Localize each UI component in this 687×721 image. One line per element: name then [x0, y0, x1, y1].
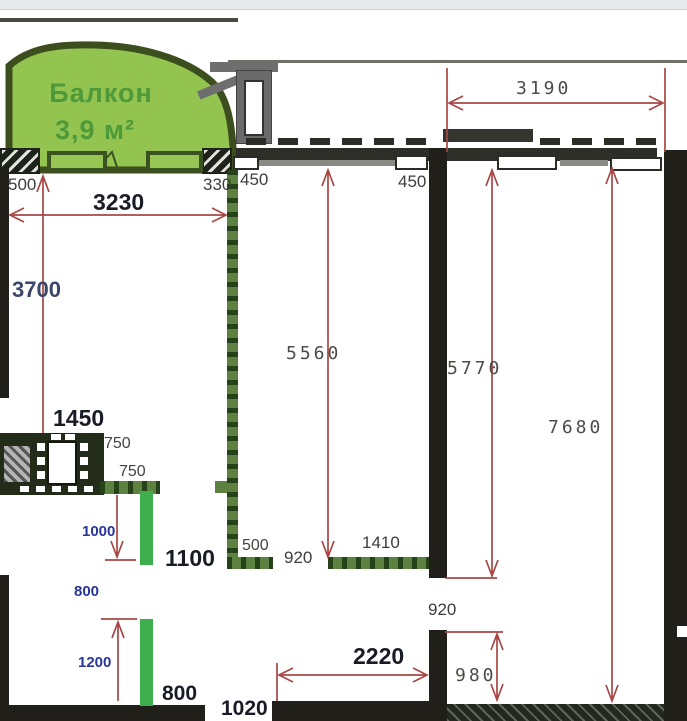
dim-750-lower: 750: [119, 464, 146, 480]
dim-920-mid: 920: [284, 549, 312, 566]
dim-750-upper: 750: [104, 436, 131, 452]
floor-plan: Балкон 3,9 м²: [0, 0, 687, 721]
dim-980: 980: [455, 667, 497, 685]
dim-1020: 1020: [221, 698, 268, 719]
dim-5770: 5770: [447, 360, 502, 378]
dimension-lines: [0, 0, 687, 721]
dim-330: 330: [203, 176, 231, 193]
dim-2220: 2220: [353, 645, 404, 668]
dim-1450: 1450: [53, 407, 104, 430]
dim-450-right: 450: [398, 173, 426, 190]
dim-1000: 1000: [82, 524, 115, 539]
dim-920-right: 920: [428, 601, 456, 618]
dim-1100: 1100: [165, 547, 215, 570]
dim-7680: 7680: [548, 419, 603, 437]
dim-1200: 1200: [78, 655, 111, 670]
dim-5560: 5560: [286, 345, 341, 363]
dim-500-bottom: 500: [242, 538, 269, 554]
dim-1410: 1410: [362, 534, 400, 551]
dim-800-mid: 800: [74, 584, 99, 599]
dim-3700: 3700: [12, 279, 61, 301]
dim-3230: 3230: [93, 191, 144, 214]
dim-800-bottom: 800: [162, 683, 197, 704]
dim-500-top: 500: [8, 176, 36, 193]
dim-3190: 3190: [516, 80, 571, 98]
dim-450-left: 450: [240, 171, 268, 188]
